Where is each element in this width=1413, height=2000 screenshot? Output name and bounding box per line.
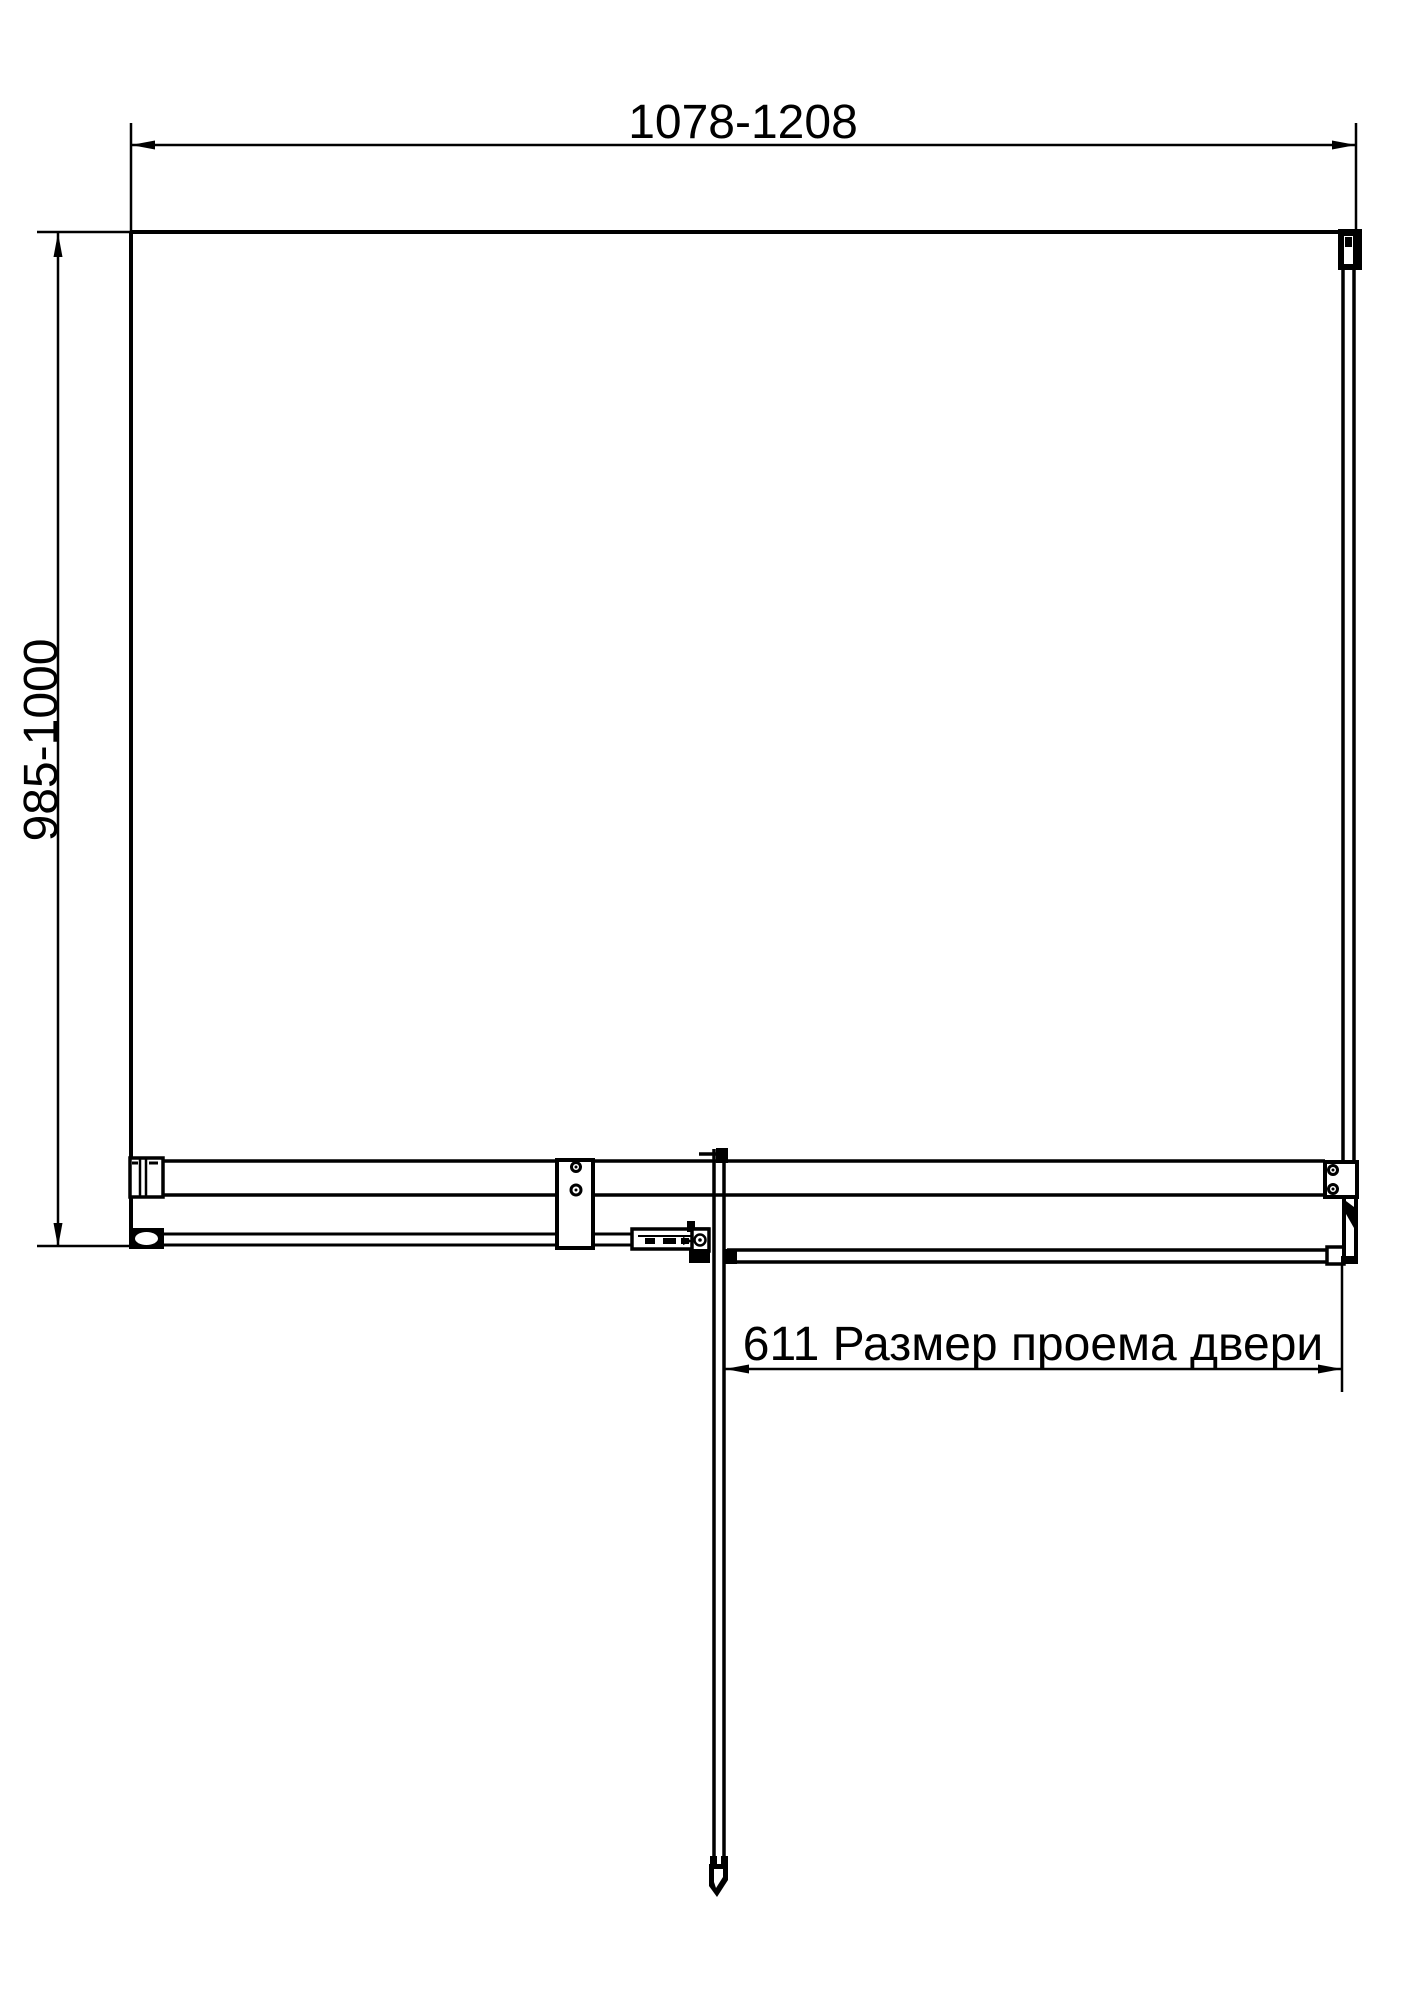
arrowhead-left-icon [131,141,155,150]
handle-tick-2 [663,1238,676,1244]
top-track [163,1161,1325,1195]
width-dimension: 1078-1208 [131,96,1356,232]
roller-wheel [135,1232,158,1245]
depth-dimension: 985-1000 [15,232,131,1247]
handle-foot-bracket [689,1249,710,1263]
door-opening-label: 611 Размер проема двери [743,1318,1323,1371]
bracket-clamp-nub [1345,237,1352,247]
pivot-axle-dot [698,1238,702,1242]
screw-center-dot-top [575,1166,578,1169]
arrowhead-right-icon [1332,141,1356,150]
door-roller-left [129,1228,164,1249]
corner-post-foot [1341,1256,1358,1264]
screw-center-dot-bottom [575,1189,578,1192]
rail-connector [725,1249,737,1264]
depth-dimension-label: 985-1000 [15,639,68,842]
door-handle [632,1221,710,1263]
door-opening-dimension: 611 Размер проема двери [725,1265,1342,1392]
seal-collar-left [710,1856,717,1865]
side-glass-panel [1343,268,1354,1162]
arrowhead-up-icon [54,233,63,257]
wall-bracket-top-right [1338,229,1362,270]
screw-dot-bottom [1332,1188,1335,1191]
wall-profile-left [130,1158,163,1197]
technical-drawing-canvas: 1078-1208 985-1000 611 Размер проема две… [0,0,1413,2000]
center-bracket [557,1160,593,1248]
arrowhead-down-icon [54,1223,63,1247]
center-bracket-body [557,1160,593,1248]
handle-tick-1 [645,1238,655,1244]
wall-profile-right [1325,1162,1357,1197]
width-dimension-label: 1078-1208 [628,96,858,149]
knob-cap [716,1148,728,1163]
fixed-rail-bottom-right [725,1247,1344,1264]
corner-post-right [1341,1197,1358,1264]
screw-dot-top [1332,1169,1335,1172]
seal-collar-right [721,1856,728,1865]
